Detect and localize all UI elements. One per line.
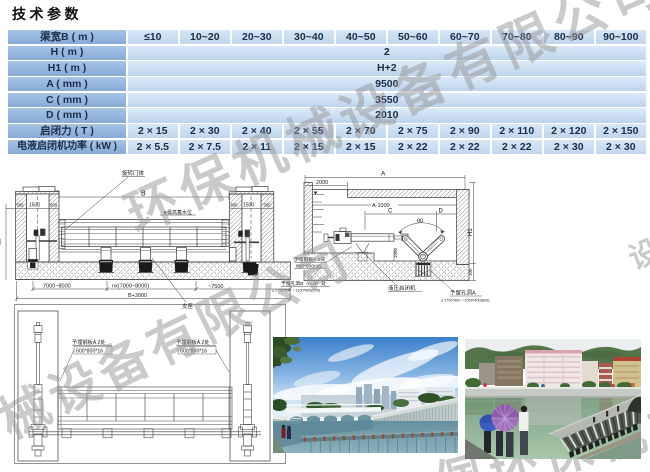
svg-text:7000~8000: 7000~8000 [43, 284, 71, 290]
svg-text:90: 90 [417, 219, 423, 225]
svg-text:1500: 1500 [29, 203, 40, 209]
svg-text:nx(7000~8000): nx(7000~8000) [112, 284, 149, 290]
svg-text:500: 500 [0, 239, 2, 245]
svg-text:500: 500 [50, 203, 58, 208]
svg-text:1000: 1000 [393, 247, 398, 258]
svg-text:D: D [439, 209, 444, 215]
svg-text:H1: H1 [468, 228, 474, 236]
svg-text:C: C [388, 209, 393, 215]
svg-text:±:1700*400 ↑:1000*400(600): ±:1700*400 ↑:1000*400(600) [441, 299, 490, 303]
svg-text:液压启闭机: 液压启闭机 [388, 284, 416, 292]
svg-text:100: 100 [468, 268, 473, 276]
svg-text:1500: 1500 [243, 203, 254, 209]
svg-text:500: 500 [17, 203, 25, 208]
svg-text:予留孔洞A: 予留孔洞A [450, 289, 476, 297]
svg-text:2000: 2000 [316, 180, 328, 186]
svg-text:500: 500 [264, 203, 272, 208]
svg-text:B+3000: B+3000 [128, 293, 147, 299]
svg-text:A: A [381, 171, 386, 178]
